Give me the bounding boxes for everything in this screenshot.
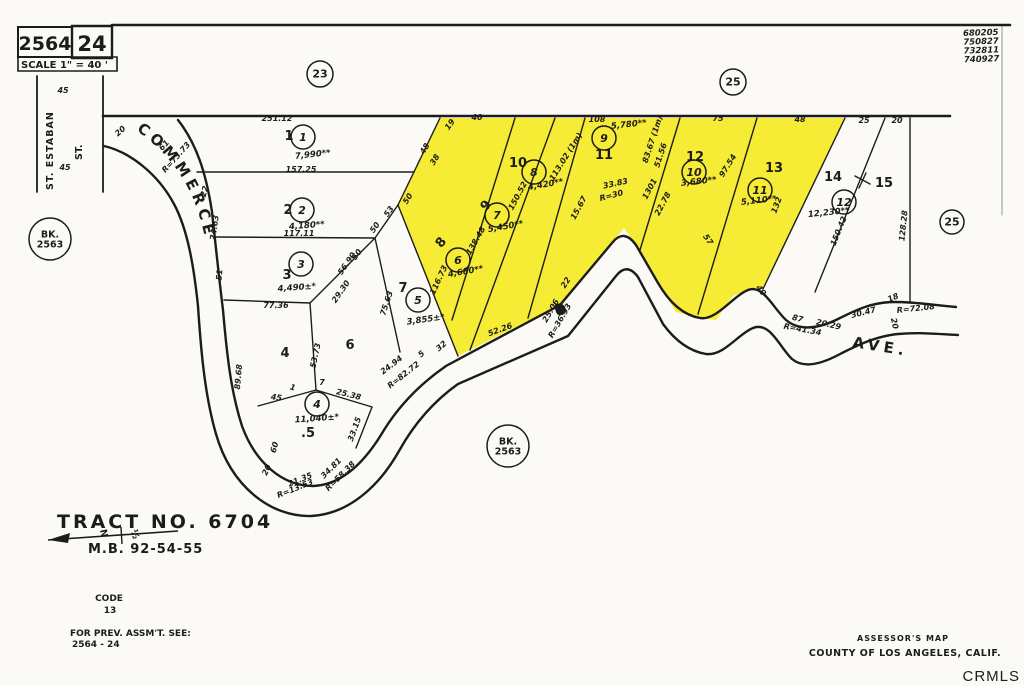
dimension-label: 5	[416, 349, 426, 360]
revision-stamps: 680205750827732811740927	[963, 28, 1000, 66]
reference-circle-text: 2563	[495, 447, 521, 458]
dimension-label: 20	[113, 124, 128, 138]
county-label: COUNTY OF LOS ANGELES, CALIF.	[809, 648, 1001, 659]
dimension-label: 45	[58, 163, 71, 172]
lot-number: 6	[345, 338, 354, 353]
dimension-label: 20	[891, 116, 903, 125]
parcel-circled-number: 3	[297, 258, 305, 271]
parcel-circled-number: 4	[312, 398, 321, 411]
dimension-label: 29.30	[330, 278, 352, 304]
book-number: 2564	[19, 33, 72, 55]
dimension-label: 117.11	[284, 229, 315, 238]
dimension-label: 33.15	[346, 415, 363, 442]
dimension-label: 7	[319, 378, 325, 387]
dimension-label: 53	[382, 204, 396, 219]
crmls-watermark: CRMLS	[962, 668, 1020, 685]
parcel-area: 11,040±*	[294, 412, 340, 425]
parcel-circled-number: 1	[299, 131, 307, 144]
dimension-label: 45	[269, 392, 283, 403]
prev-assessment-ref: 2564 - 24	[72, 640, 120, 650]
dimension-label: 32	[434, 339, 449, 353]
lot-number: .5	[301, 426, 315, 441]
street-label-st: ST.	[74, 145, 85, 161]
stamp-number: 740927	[964, 54, 1000, 65]
lot-number: 13	[765, 161, 783, 176]
lot-number: 14	[824, 170, 842, 185]
parcel-circled-number: 2	[298, 204, 306, 217]
reference-circle-text: 2563	[37, 240, 63, 251]
dimension-label: 128.28	[897, 209, 909, 241]
footer-block: TRACT NO. 6704 M.B. 92-54-55 CODE 13 FOR…	[57, 511, 1020, 685]
dimension-label: 48	[793, 115, 806, 124]
dimension-label: 108	[589, 115, 606, 124]
parcel-circled-number: 8	[530, 166, 538, 179]
lot-number: 4	[280, 346, 289, 361]
dimension-label: 75.63	[378, 289, 395, 316]
assessor-map: 2564 24 SCALE 1" = 40 ' 6802057508277328…	[0, 0, 1024, 685]
dimension-label: 1	[289, 383, 297, 393]
dimension-label: 30.47	[850, 305, 877, 320]
dimension-label: 53.73	[309, 342, 323, 369]
lot-number: 10	[509, 156, 527, 171]
parcel-circled-number: 7	[493, 209, 501, 222]
dimension-label: R=72.08	[896, 302, 935, 315]
code-label: CODE	[95, 594, 123, 604]
dimension-label: 50	[368, 220, 382, 235]
title-block: 2564 24 SCALE 1" = 40 '	[18, 26, 117, 71]
prev-assessment-note: FOR PREV. ASSM'T. SEE:	[70, 629, 191, 639]
dimension-label: 157.25	[286, 165, 317, 174]
parcel-circled-number: 6	[454, 254, 462, 267]
parcel-area: 4,490±*	[276, 282, 317, 295]
parcel-circled-number: 9	[600, 132, 608, 145]
dimension-label: 251.12	[262, 114, 293, 123]
dimension-label: 89.68	[233, 363, 244, 389]
reference-circle-text: 25	[944, 216, 959, 229]
map-scale: SCALE 1" = 40 '	[21, 60, 108, 71]
dimension-label: 20	[260, 463, 273, 477]
dimension-label: 60	[269, 440, 281, 454]
assessor-map-page: 2564 24 SCALE 1" = 40 ' 6802057508277328…	[0, 0, 1024, 685]
dimension-label: 150.42	[829, 215, 849, 247]
dimension-label: 77.36	[263, 301, 289, 310]
dimension-label: 75	[712, 114, 724, 123]
assessor-map-label: ASSESSOR'S MAP	[857, 634, 949, 643]
dimension-label: 51	[215, 269, 225, 281]
dimension-label: 25	[858, 116, 870, 125]
page-number: 24	[77, 32, 106, 56]
dimension-label: 45	[56, 86, 69, 95]
reference-circle-text: 23	[312, 68, 327, 81]
code-value: 13	[104, 606, 117, 616]
reference-circle-text: 25	[725, 76, 740, 89]
lot-number: 7	[398, 281, 407, 296]
dimension-label: 40	[470, 113, 483, 122]
parcel-area: 3,855±*	[406, 312, 446, 327]
parcel-area: 7,990**	[294, 148, 331, 162]
street-label-ave: AVE.	[851, 333, 909, 360]
dimension-label: 20	[889, 317, 900, 330]
parcel-circled-number: 5	[414, 294, 422, 307]
street-label-st-estaban: ST. ESTABAN	[45, 111, 56, 190]
lot-number: 15	[875, 176, 893, 191]
map-book-ref: M.B. 92-54-55	[88, 542, 203, 557]
tract-title: TRACT NO. 6704	[57, 511, 273, 533]
